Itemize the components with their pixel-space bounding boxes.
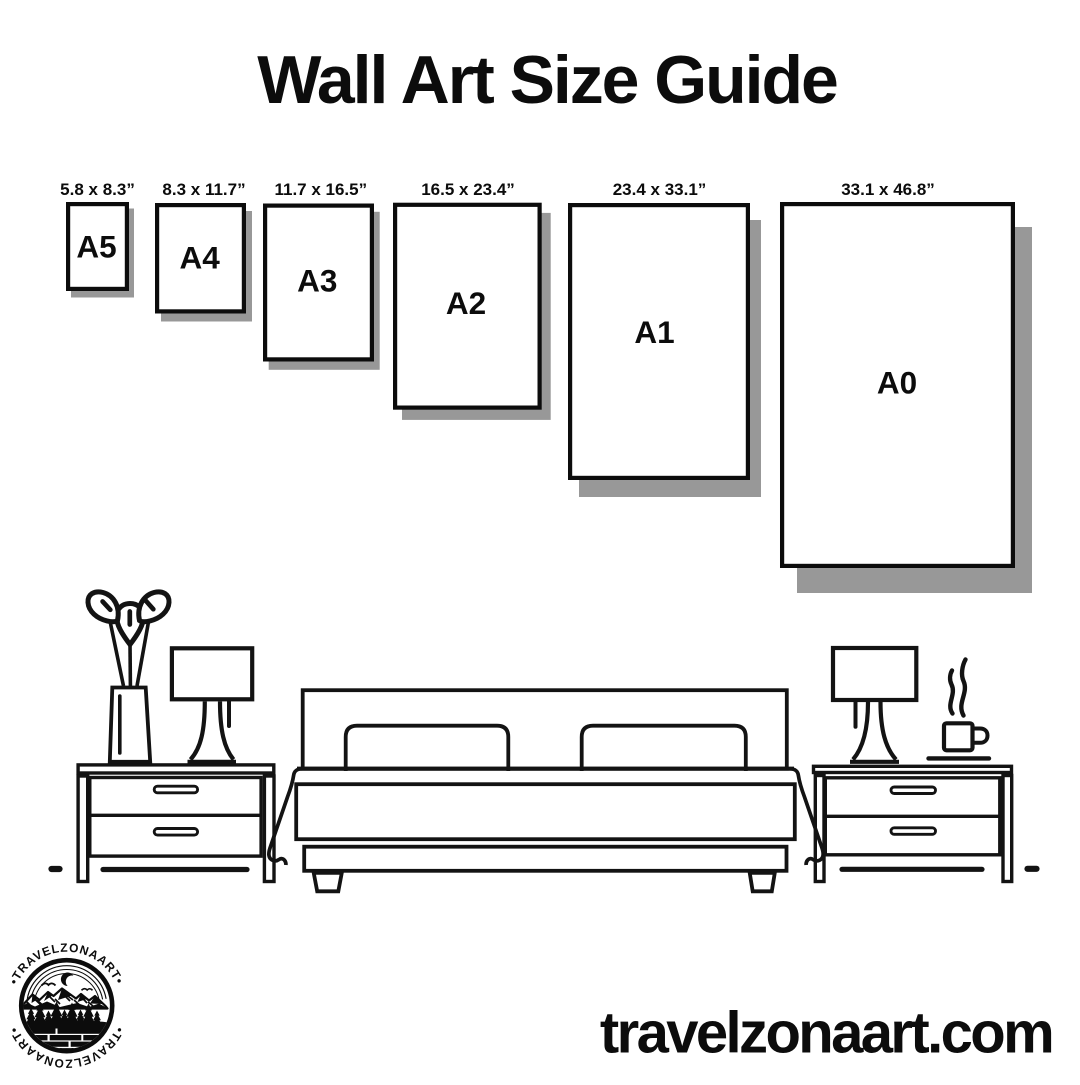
svg-text:travelzonaart.com: travelzonaart.com — [600, 1001, 1052, 1066]
svg-text:11.7 x 16.5”: 11.7 x 16.5” — [274, 180, 367, 199]
svg-text:16.5 x 23.4”: 16.5 x 23.4” — [421, 180, 515, 199]
svg-text:33.1 x 46.8”: 33.1 x 46.8” — [841, 180, 935, 199]
svg-text:A0: A0 — [877, 365, 917, 401]
svg-text:A5: A5 — [76, 229, 116, 265]
svg-text:A2: A2 — [446, 285, 486, 321]
svg-text:Wall Art Size Guide: Wall Art Size Guide — [257, 42, 837, 118]
svg-text:5.8 x 8.3”: 5.8 x 8.3” — [60, 180, 135, 199]
svg-text:23.4 x 33.1”: 23.4 x 33.1” — [613, 180, 707, 199]
svg-text:A3: A3 — [297, 262, 337, 298]
svg-text:A4: A4 — [179, 239, 220, 275]
svg-text:A1: A1 — [634, 314, 674, 350]
svg-text:8.3 x 11.7”: 8.3 x 11.7” — [162, 180, 245, 199]
